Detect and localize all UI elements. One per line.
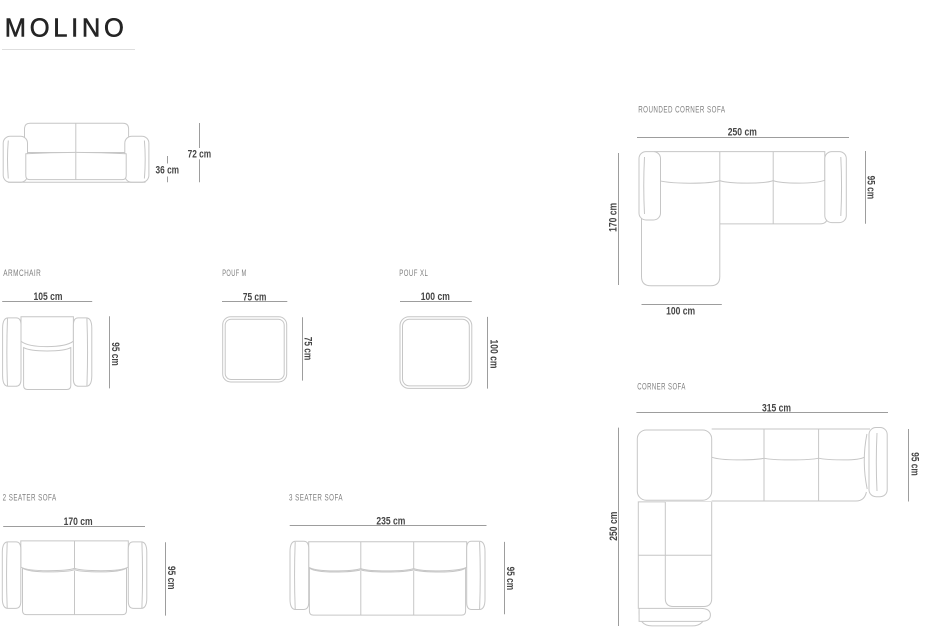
svg-text:POUF M: POUF M [222,268,247,279]
svg-text:250 cm: 250 cm [728,127,757,139]
svg-text:POUF XL: POUF XL [399,268,428,279]
svg-text:235 cm: 235 cm [376,516,405,528]
svg-text:315 cm: 315 cm [762,403,791,415]
svg-text:250 cm: 250 cm [608,512,620,541]
svg-text:100 cm: 100 cm [487,340,499,369]
svg-text:3 SEATER SOFA: 3 SEATER SOFA [289,493,343,504]
svg-text:CORNER SOFA: CORNER SOFA [637,382,686,393]
svg-text:105 cm: 105 cm [34,291,63,303]
svg-text:170 cm: 170 cm [64,516,93,528]
svg-text:MOLINO: MOLINO [5,15,124,43]
svg-text:100 cm: 100 cm [421,291,450,303]
svg-text:95 cm: 95 cm [165,566,177,590]
svg-text:95 cm: 95 cm [504,567,516,591]
svg-text:100 cm: 100 cm [666,306,695,318]
svg-text:75 cm: 75 cm [243,291,267,303]
svg-text:ROUNDED CORNER SOFA: ROUNDED CORNER SOFA [638,105,725,116]
svg-text:95 cm: 95 cm [864,176,876,200]
svg-text:36 cm: 36 cm [156,165,180,177]
svg-text:ARMCHAIR: ARMCHAIR [3,268,41,279]
svg-text:72 cm: 72 cm [188,149,212,161]
svg-text:95 cm: 95 cm [908,452,920,476]
svg-text:170 cm: 170 cm [608,203,620,232]
svg-text:95 cm: 95 cm [109,342,121,366]
svg-text:2 SEATER SOFA: 2 SEATER SOFA [3,493,57,504]
svg-text:75 cm: 75 cm [301,337,313,361]
